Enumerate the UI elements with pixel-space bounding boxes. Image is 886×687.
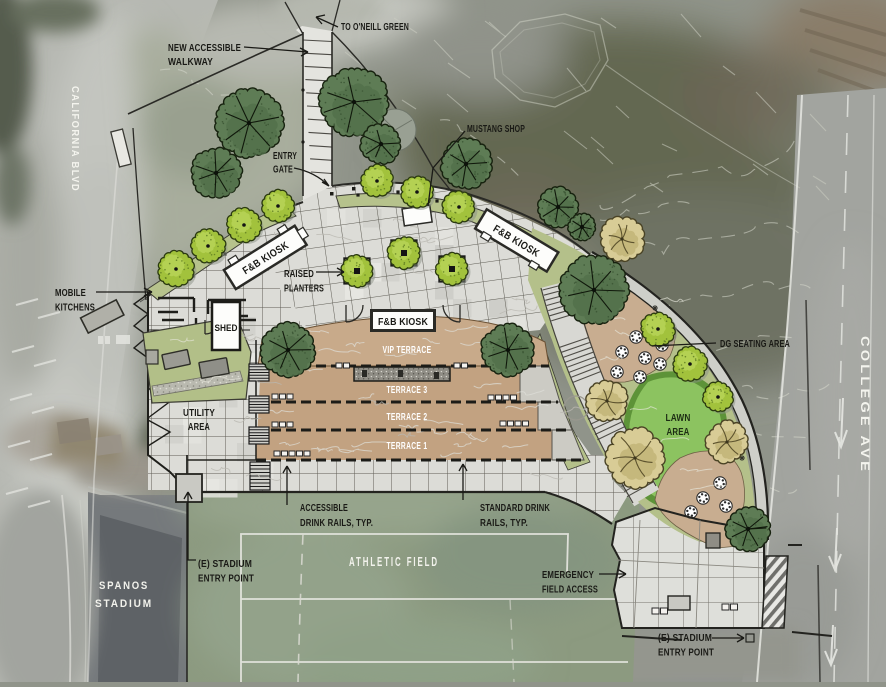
- svg-text:DG SEATING AREA: DG SEATING AREA: [720, 339, 790, 350]
- svg-text:TERRACE 2: TERRACE 2: [387, 412, 428, 423]
- svg-text:ATHLETIC FIELD: ATHLETIC FIELD: [349, 555, 439, 569]
- svg-text:MUSTANG SHOP: MUSTANG SHOP: [467, 124, 525, 135]
- svg-text:CALIFORNIA BLVD: CALIFORNIA BLVD: [69, 86, 80, 192]
- svg-text:TERRACE 3: TERRACE 3: [387, 385, 428, 396]
- svg-text:STADIUM: STADIUM: [95, 598, 153, 610]
- svg-text:TO O'NEILL GREEN: TO O'NEILL GREEN: [341, 22, 409, 33]
- svg-text:TERRACE 1: TERRACE 1: [387, 441, 428, 452]
- svg-text:VIP TERRACE: VIP TERRACE: [383, 345, 432, 356]
- svg-text:F&B KIOSK: F&B KIOSK: [378, 316, 428, 328]
- svg-text:SPANOS: SPANOS: [99, 580, 149, 592]
- svg-text:SHED: SHED: [215, 323, 238, 334]
- svg-text:COLLEGE AVE: COLLEGE AVE: [858, 336, 870, 474]
